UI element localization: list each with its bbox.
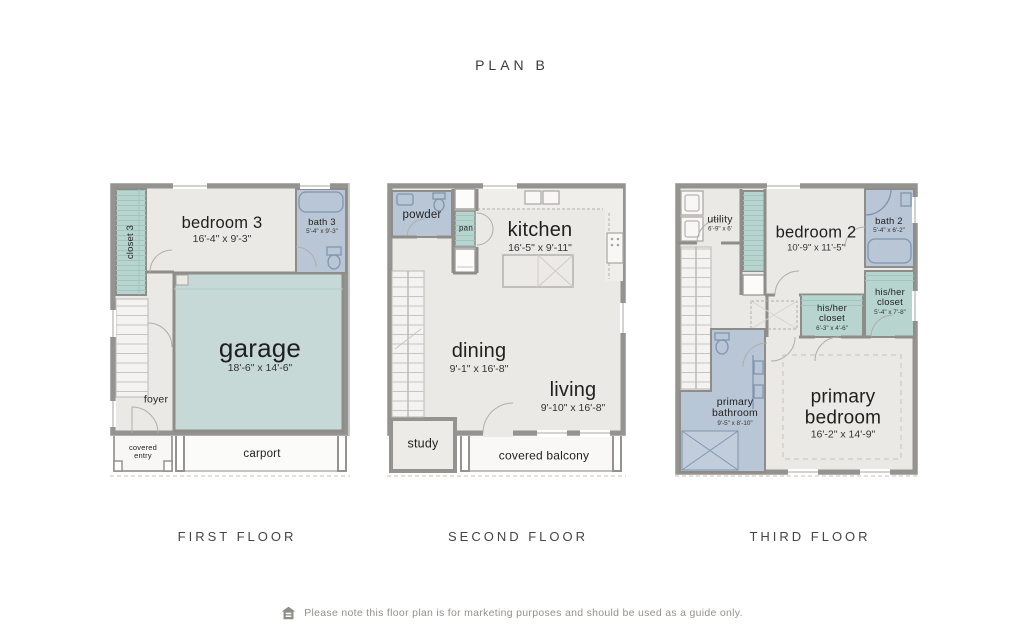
primary-bathroom-name: primary bathroom — [700, 397, 770, 420]
bedroom-3-dims: 16'-4" x 9'-3" — [182, 234, 263, 245]
living-name: living — [541, 380, 606, 402]
his-her-closet-center-dims: 6'-3" x 4'-6" — [809, 325, 855, 332]
first-floor-plan: closet 3 bedroom 3 16'-4" x 9'-3" bath 3… — [110, 183, 350, 479]
bath-3-name: bath 3 — [306, 218, 338, 228]
study-label: study — [408, 437, 439, 451]
bedroom-3-name: bedroom 3 — [182, 215, 263, 233]
stairs — [116, 299, 148, 397]
his-her-closet-right-name: his/her closet — [867, 288, 913, 309]
covered-balcony-label: covered balcony — [499, 450, 589, 463]
kitchen-island — [503, 255, 573, 287]
closet-3-label: closet 3 — [126, 225, 136, 259]
second-floor-drawing — [387, 183, 626, 479]
his-her-closet-center-name: his/her closet — [809, 304, 855, 325]
bedroom-2-name: bedroom 2 — [776, 224, 857, 242]
primary-bedroom-name: primary bedroom — [791, 387, 895, 428]
kitchen-name: kitchen — [508, 220, 573, 242]
bedroom-2-label: bedroom 2 10'-9" x 11'-5" — [776, 224, 857, 253]
third-floor-heading: THIRD FLOOR — [749, 529, 870, 544]
living-label: living 9'-10" x 16'-8" — [541, 380, 606, 414]
carport-label: carport — [243, 448, 280, 460]
garage-name: garage — [219, 334, 301, 362]
sink-icon — [543, 191, 559, 204]
kitchen-dims: 16'-5" x 9'-11" — [508, 243, 573, 254]
his-her-closet-right-label: his/her closet 5'-4" x 7'-8" — [867, 288, 913, 316]
disclaimer-text: Please note this floor plan is for marke… — [304, 607, 743, 619]
third-floor-plan: utility 6'-9" x 6' bedroom 2 10'-9" x 11… — [675, 183, 918, 479]
kitchen-label: kitchen 16'-5" x 9'-11" — [508, 220, 573, 254]
garage-label: garage 18'-6" x 14'-6" — [219, 334, 301, 374]
primary-bedroom-label: primary bedroom 16'-2" x 14'-9" — [791, 387, 895, 440]
primary-bedroom-dims: 16'-2" x 14'-9" — [791, 429, 895, 440]
bath-2-label: bath 2 5'-4" x 6'-2" — [873, 217, 905, 235]
dining-dims: 9'-1" x 16'-8" — [450, 364, 509, 375]
bath-2-dims: 5'-4" x 6'-2" — [873, 228, 905, 235]
living-dims: 9'-10" x 16'-8" — [541, 403, 606, 414]
first-floor-heading: FIRST FLOOR — [178, 529, 297, 544]
bedroom-2-dims: 10'-9" x 11'-5" — [776, 243, 857, 253]
primary-bathroom-dims: 9'-5" x 8'-10" — [700, 420, 770, 427]
second-floor-heading: SECOND FLOOR — [448, 529, 588, 544]
his-her-closet-center-label: his/her closet 6'-3" x 4'-6" — [809, 304, 855, 332]
dining-name: dining — [450, 341, 509, 363]
equal-housing-icon — [281, 606, 296, 620]
linen-closet-strip — [741, 189, 765, 295]
utility-label: utility 6'-9" x 6' — [707, 214, 732, 233]
covered-entry-label: covered entry — [120, 444, 166, 460]
his-her-closet-right-dims: 5'-4" x 7'-8" — [867, 309, 913, 316]
floor-plan-sheet: PLAN B — [0, 0, 1024, 640]
stairs — [681, 247, 711, 389]
garage-dims: 18'-6" x 14'-6" — [219, 363, 301, 374]
foyer-label: foyer — [144, 394, 168, 405]
primary-bathroom-label: primary bathroom 9'-5" x 8'-10" — [700, 397, 770, 427]
disclaimer: Please note this floor plan is for marke… — [0, 606, 1024, 620]
bedroom-3-label: bedroom 3 16'-4" x 9'-3" — [182, 215, 263, 245]
powder-label: powder — [403, 209, 442, 221]
utility-name: utility — [707, 214, 732, 225]
dining-label: dining 9'-1" x 16'-8" — [450, 341, 509, 375]
bath-3-label: bath 3 5'-4" x 9'-3" — [306, 218, 338, 236]
second-floor-plan: powder pan kitchen 16'-5" x 9'-11" dinin… — [387, 183, 626, 479]
utility-dims: 6'-9" x 6' — [707, 227, 732, 234]
bath-3-dims: 5'-4" x 9'-3" — [306, 229, 338, 236]
pantry-label: pan — [459, 225, 473, 234]
plan-title: PLAN B — [0, 57, 1024, 73]
sink-icon — [525, 191, 541, 204]
stairs — [392, 271, 424, 417]
bath-2-name: bath 2 — [873, 217, 905, 227]
stove-icon — [607, 233, 623, 263]
